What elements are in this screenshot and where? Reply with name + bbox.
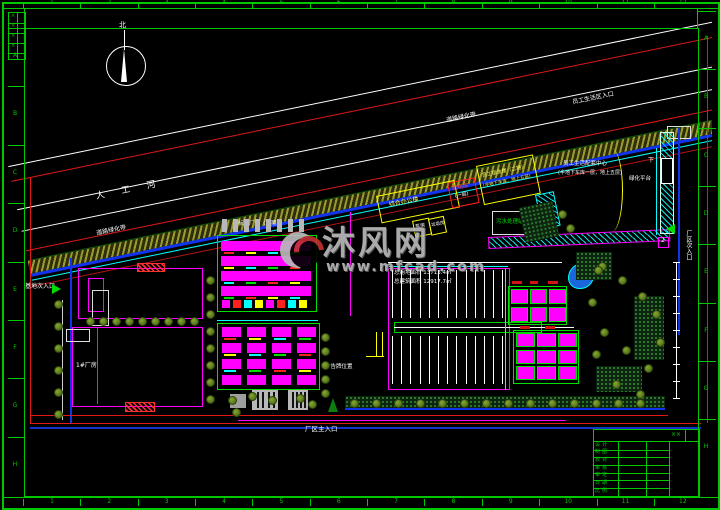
tree-icon bbox=[268, 396, 277, 405]
parking-stall-line bbox=[429, 270, 430, 318]
dimension-tick bbox=[673, 313, 680, 314]
landscape-patch bbox=[519, 201, 560, 243]
tree-icon bbox=[164, 317, 173, 326]
landscape-patch bbox=[634, 296, 664, 360]
tree-icon bbox=[618, 276, 627, 285]
dimension-tick bbox=[673, 262, 680, 263]
tree-icon bbox=[526, 399, 535, 408]
dimension-tick bbox=[673, 279, 680, 280]
dimension-tick bbox=[673, 381, 680, 382]
cad-site-plan-canvas: 人 工 河 道路绿化带 道路绿化带 员工生活区入口 北 1#厂房 标准厂房（二期… bbox=[0, 0, 720, 510]
tree-icon bbox=[321, 333, 330, 342]
tree-icon bbox=[612, 380, 621, 389]
parking-stall-line bbox=[475, 270, 476, 318]
dimension-tick bbox=[673, 330, 680, 331]
tree-icon bbox=[548, 399, 557, 408]
tree-icon bbox=[638, 292, 647, 301]
dimension-tick bbox=[673, 296, 680, 297]
tree-icon bbox=[504, 399, 513, 408]
dimension-tick bbox=[673, 364, 680, 365]
tree-icon bbox=[622, 346, 631, 355]
tree-icon bbox=[99, 317, 108, 326]
tree-icon bbox=[54, 300, 63, 309]
tree-icon bbox=[112, 317, 121, 326]
tree-icon bbox=[321, 375, 330, 384]
parking-stall-line bbox=[392, 336, 393, 384]
tree-icon bbox=[592, 350, 601, 359]
parking-stall-line bbox=[438, 336, 439, 384]
parking-stall-line bbox=[420, 270, 421, 318]
tree-icon bbox=[321, 347, 330, 356]
tree-icon bbox=[54, 366, 63, 375]
tree-icon bbox=[600, 328, 609, 337]
tree-icon bbox=[482, 399, 491, 408]
parking-stall-line bbox=[401, 270, 402, 318]
tree-icon bbox=[54, 388, 63, 397]
tree-icon bbox=[248, 392, 257, 401]
parking-stall-line bbox=[392, 270, 393, 318]
parking-stall-line bbox=[502, 336, 503, 384]
tree-icon bbox=[460, 399, 469, 408]
tree-icon bbox=[321, 361, 330, 370]
parking-stall-line bbox=[447, 336, 448, 384]
roof-unit-bar bbox=[266, 219, 271, 232]
dimension-tick bbox=[673, 347, 680, 348]
parking-stall-line bbox=[438, 270, 439, 318]
tree-icon bbox=[594, 266, 603, 275]
decorations bbox=[0, 0, 720, 510]
tree-icon bbox=[296, 394, 305, 403]
tree-icon bbox=[206, 378, 215, 387]
tree-icon bbox=[558, 210, 567, 219]
parking-stall-line bbox=[493, 336, 494, 384]
tree-icon bbox=[566, 224, 575, 233]
tree-icon bbox=[228, 396, 237, 405]
tree-icon bbox=[190, 317, 199, 326]
tree-icon bbox=[54, 344, 63, 353]
tree-icon bbox=[206, 327, 215, 336]
tree-icon bbox=[592, 399, 601, 408]
tree-icon bbox=[54, 322, 63, 331]
parking-stall-line bbox=[493, 270, 494, 318]
tree-icon bbox=[438, 399, 447, 408]
parking-stall-line bbox=[410, 336, 411, 384]
tree-icon bbox=[321, 389, 330, 398]
tree-icon bbox=[151, 317, 160, 326]
tree-icon bbox=[350, 399, 359, 408]
tree-icon bbox=[644, 364, 653, 373]
tree-icon bbox=[206, 344, 215, 353]
parking-stall-line bbox=[429, 336, 430, 384]
parking-stall-line bbox=[466, 270, 467, 318]
parking-stall-line bbox=[401, 336, 402, 384]
parking-stall-line bbox=[410, 270, 411, 318]
tree-icon bbox=[636, 399, 645, 408]
tree-icon bbox=[138, 317, 147, 326]
tree-icon bbox=[206, 310, 215, 319]
parking-stall-line bbox=[456, 270, 457, 318]
parking-stall-line bbox=[502, 270, 503, 318]
tree-icon bbox=[206, 361, 215, 370]
tree-icon bbox=[416, 399, 425, 408]
roof-unit-bar bbox=[233, 219, 238, 232]
tree-icon bbox=[656, 338, 665, 347]
tree-icon bbox=[206, 276, 215, 285]
tree-icon bbox=[206, 395, 215, 404]
tree-icon bbox=[394, 399, 403, 408]
tree-icon bbox=[652, 310, 661, 319]
roof-unit-bar bbox=[255, 219, 260, 232]
parking-stall-line bbox=[475, 336, 476, 384]
roof-unit-bar bbox=[244, 219, 249, 232]
roof-unit-bar bbox=[222, 219, 227, 232]
tree-icon bbox=[372, 399, 381, 408]
parking-stall-line bbox=[466, 336, 467, 384]
parking-stall-line bbox=[447, 270, 448, 318]
tree-icon bbox=[54, 410, 63, 419]
tree-icon bbox=[614, 399, 623, 408]
parking-stall-line bbox=[456, 336, 457, 384]
tree-icon bbox=[588, 298, 597, 307]
tree-icon bbox=[86, 317, 95, 326]
tree-icon bbox=[308, 400, 317, 409]
parking-stall-line bbox=[420, 336, 421, 384]
tree-icon bbox=[125, 317, 134, 326]
parking-stall-line bbox=[484, 270, 485, 318]
roof-unit-bar bbox=[299, 219, 304, 232]
tree-icon bbox=[177, 317, 186, 326]
tree-icon bbox=[232, 408, 241, 417]
roof-unit-bar bbox=[277, 219, 282, 232]
tree-icon bbox=[636, 390, 645, 399]
parking-stall-line bbox=[484, 336, 485, 384]
roof-unit-bar bbox=[288, 219, 293, 232]
tree-icon bbox=[570, 399, 579, 408]
dimension-tick bbox=[673, 398, 680, 399]
tree-icon bbox=[206, 293, 215, 302]
